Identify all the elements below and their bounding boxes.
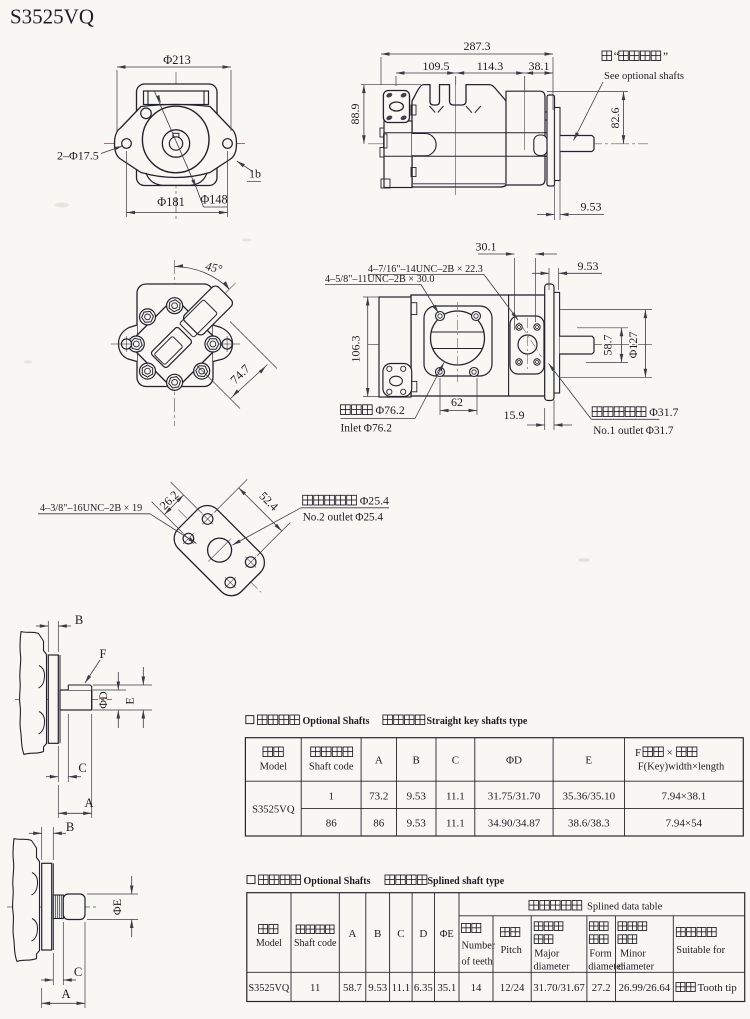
svg-text:Pitch: Pitch (501, 945, 523, 956)
svg-text:9.53: 9.53 (581, 200, 602, 214)
svg-text:Model: Model (256, 938, 282, 949)
svg-text:109.5: 109.5 (423, 59, 450, 73)
svg-text:C: C (78, 761, 86, 775)
svg-text:Minor: Minor (620, 949, 646, 960)
svg-text:B: B (413, 755, 420, 767)
svg-text:ΦD: ΦD (506, 755, 522, 767)
svg-text:ΦE: ΦE (440, 929, 454, 940)
svg-text:Suitable for: Suitable for (676, 945, 725, 956)
svg-text:S3525VQ: S3525VQ (249, 983, 290, 994)
svg-text:38.1: 38.1 (529, 59, 550, 73)
svg-text:F(Key)width×length: F(Key)width×length (638, 762, 725, 773)
svg-text:B: B (66, 820, 74, 834)
svg-text:F: F (100, 647, 107, 661)
svg-text:Φ76.2: Φ76.2 (376, 403, 405, 417)
svg-text:88.9: 88.9 (348, 104, 362, 125)
svg-text:E: E (123, 697, 137, 704)
svg-text:diameter: diameter (534, 962, 571, 973)
svg-text:S3525VQ: S3525VQ (10, 5, 94, 29)
svg-text:C: C (74, 965, 82, 979)
svg-text:1b: 1b (249, 167, 261, 181)
svg-text:”: ” (663, 51, 668, 63)
svg-text:E: E (585, 755, 592, 767)
svg-text:34.90/34.87: 34.90/34.87 (488, 818, 541, 830)
svg-text:A: A (375, 755, 383, 767)
svg-text:35.1: 35.1 (437, 982, 456, 994)
svg-text:2–Φ17.5: 2–Φ17.5 (57, 149, 99, 163)
svg-text:Φ127: Φ127 (626, 332, 640, 359)
svg-text:14: 14 (471, 982, 482, 994)
svg-text:12/24: 12/24 (500, 982, 525, 994)
svg-text:31.75/31.70: 31.75/31.70 (488, 791, 541, 803)
svg-text:9.53: 9.53 (368, 982, 387, 994)
svg-text:Straight key shafts type: Straight key shafts type (427, 716, 528, 727)
svg-text:11.1: 11.1 (446, 791, 465, 803)
svg-text:86: 86 (373, 818, 385, 830)
svg-text:Tooth tip: Tooth tip (698, 982, 737, 994)
svg-text:B: B (374, 928, 381, 940)
svg-text:35.36/35.10: 35.36/35.10 (563, 791, 616, 803)
svg-text:38.6/38.3: 38.6/38.3 (568, 818, 610, 830)
svg-text:Φ213: Φ213 (163, 53, 190, 67)
svg-text:11.1: 11.1 (392, 982, 411, 994)
svg-text:15.9: 15.9 (504, 408, 525, 422)
svg-text:7.94×54: 7.94×54 (666, 818, 703, 830)
svg-text:Shaft code: Shaft code (309, 762, 354, 773)
svg-text:58.7: 58.7 (601, 335, 615, 356)
svg-text:86: 86 (326, 818, 338, 830)
svg-text:31.70/31.67: 31.70/31.67 (533, 982, 585, 994)
svg-text:1: 1 (328, 791, 334, 803)
svg-text:Optional Shafts: Optional Shafts (304, 876, 371, 887)
svg-text:“: “ (614, 51, 619, 63)
svg-text:Φ181: Φ181 (157, 195, 184, 209)
svg-text:11.1: 11.1 (446, 818, 465, 830)
svg-text:of teeth: of teeth (462, 957, 494, 968)
svg-text:Inlet Φ76.2: Inlet Φ76.2 (341, 423, 393, 435)
svg-text:Number: Number (462, 941, 496, 952)
svg-text:D: D (419, 928, 427, 940)
svg-text:9.53: 9.53 (578, 259, 599, 273)
svg-text:Φ31.7: Φ31.7 (649, 405, 678, 419)
svg-text:114.3: 114.3 (477, 59, 504, 73)
svg-text:Form: Form (589, 949, 611, 960)
svg-text:See optional shafts: See optional shafts (604, 71, 684, 82)
svg-text:S3525VQ: S3525VQ (252, 805, 295, 816)
svg-text:No.1 outlet Φ31.7: No.1 outlet Φ31.7 (593, 425, 674, 437)
svg-text:C: C (452, 755, 459, 767)
svg-text:Splined shaft type: Splined shaft type (428, 876, 505, 887)
svg-text:Optional Shafts: Optional Shafts (303, 716, 370, 727)
svg-text:30.1: 30.1 (476, 240, 497, 254)
svg-text:4–3/8"–16UNC–2B × 19: 4–3/8"–16UNC–2B × 19 (40, 503, 142, 514)
svg-text:A: A (349, 928, 357, 940)
svg-text:73.2: 73.2 (369, 791, 388, 803)
svg-text:106.3: 106.3 (349, 336, 363, 363)
svg-text:82.6: 82.6 (608, 108, 622, 129)
svg-text:58.7: 58.7 (343, 982, 362, 994)
svg-text:Model: Model (260, 762, 287, 773)
svg-text:ΦE: ΦE (110, 899, 124, 915)
svg-text:A: A (61, 987, 70, 1001)
svg-text:9.53: 9.53 (407, 791, 427, 803)
svg-text:62: 62 (451, 395, 463, 409)
svg-text:26.99/26.64: 26.99/26.64 (619, 982, 671, 994)
svg-text:7.94×38.1: 7.94×38.1 (662, 791, 707, 803)
svg-text:Φ25.4: Φ25.4 (360, 494, 389, 508)
svg-text:287.3: 287.3 (464, 39, 491, 53)
svg-text:B: B (75, 613, 83, 627)
svg-text:×: × (667, 747, 673, 759)
svg-text:Major: Major (534, 949, 560, 960)
svg-text:C: C (397, 928, 404, 940)
svg-text:27.2: 27.2 (592, 982, 611, 994)
svg-text:F: F (635, 747, 641, 759)
svg-text:A: A (84, 796, 93, 810)
svg-text:diameter: diameter (618, 962, 655, 973)
svg-text:11: 11 (310, 982, 320, 994)
svg-text:9.53: 9.53 (407, 818, 427, 830)
svg-text:4–5/8"–11UNC–2B × 30.0: 4–5/8"–11UNC–2B × 30.0 (325, 274, 434, 285)
svg-text:Splined data table: Splined data table (587, 902, 663, 913)
svg-text:No.2 outlet Φ25.4: No.2 outlet Φ25.4 (303, 512, 384, 524)
svg-text:ΦD: ΦD (96, 691, 110, 709)
svg-text:6.35: 6.35 (414, 982, 433, 994)
svg-text:Φ148: Φ148 (200, 193, 227, 207)
svg-text:Shaft code: Shaft code (294, 938, 337, 949)
